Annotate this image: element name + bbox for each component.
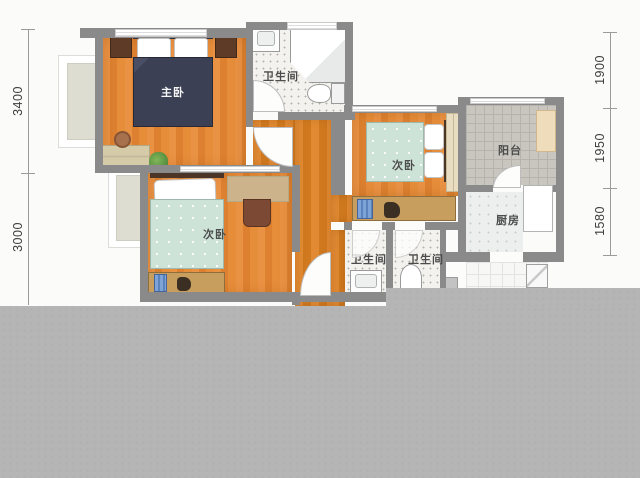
dimension-right-1950: 1950 bbox=[593, 118, 607, 178]
bedroom-right-pillow-bottom bbox=[424, 152, 444, 178]
wall-left-bedroom-left bbox=[140, 173, 148, 300]
kitchen-counter bbox=[523, 185, 553, 232]
floor-plan: 主卧 次卧 次卧 卫生间 阳台 厨房 卫生间 卫生间 bbox=[0, 0, 640, 478]
nightstand-left bbox=[110, 36, 132, 58]
bathroom-mid-left-sink-basin bbox=[355, 274, 377, 288]
bathroom-mid-left-door-gap bbox=[352, 222, 382, 230]
wall-bottom-left bbox=[140, 292, 390, 302]
dimension-line-left bbox=[28, 29, 29, 305]
bathroom-top-sink-basin bbox=[257, 31, 275, 46]
bedroom-left-dresser-blue-item bbox=[154, 274, 167, 292]
dimension-line-right bbox=[610, 32, 611, 255]
wall-bedroom-balcony-divider bbox=[458, 105, 466, 196]
window-bedroom-right-top bbox=[352, 106, 437, 112]
bedroom-right-pillow-top bbox=[424, 124, 444, 150]
dimension-tick bbox=[603, 255, 617, 256]
bedroom-left-dresser-dark-item bbox=[177, 277, 191, 291]
dimension-tick bbox=[603, 32, 617, 33]
kitchen-label: 厨房 bbox=[496, 212, 520, 228]
dimension-tick bbox=[21, 173, 35, 174]
wall-corridor-right bbox=[331, 115, 345, 195]
bathroom-mid-right-door-gap bbox=[395, 222, 425, 230]
bedroom-left-chair bbox=[243, 199, 271, 227]
bedroom-right-cabinet-blue-item bbox=[357, 199, 373, 219]
wall-balcony-kitchen-left bbox=[458, 185, 493, 192]
bathroom-top-label: 卫生间 bbox=[263, 68, 299, 84]
shower-tray bbox=[526, 264, 548, 288]
dimension-tick bbox=[603, 108, 617, 109]
master-bed: 主卧 bbox=[133, 57, 213, 127]
gray-overlay-bottom bbox=[0, 306, 640, 478]
bedroom-right-bed bbox=[366, 122, 424, 182]
wall-bedroom-left-right-upper bbox=[292, 165, 300, 252]
wall-right-balcony-kitchen bbox=[556, 97, 564, 262]
nightstand-right bbox=[215, 36, 237, 58]
bedroom-right-label: 次卧 bbox=[392, 157, 416, 173]
dimension-right-1900: 1900 bbox=[593, 40, 607, 100]
dimension-right-1580: 1580 bbox=[593, 191, 607, 251]
bay-window-master-sill bbox=[67, 63, 97, 140]
bedroom-right-cabinet-dark-item bbox=[384, 202, 400, 218]
dimension-left-3400: 3400 bbox=[11, 71, 25, 131]
balcony-label: 阳台 bbox=[498, 142, 522, 158]
bathroom-top-toilet-tank bbox=[331, 83, 345, 104]
dimension-tick bbox=[21, 29, 35, 30]
balcony-cabinet bbox=[536, 110, 556, 152]
window-bathroom-top bbox=[287, 22, 337, 30]
kitchen-door-gap bbox=[490, 252, 523, 262]
master-bedroom-label: 主卧 bbox=[161, 84, 185, 100]
window-bedroom-left-top bbox=[180, 166, 280, 172]
bathroom-mid-right-label: 卫生间 bbox=[408, 251, 444, 267]
bathroom-top-toilet-bowl bbox=[307, 84, 331, 103]
corridor-floor-mid bbox=[331, 195, 352, 222]
wall-left-master bbox=[95, 38, 103, 173]
bedroom-left-label: 次卧 bbox=[203, 226, 227, 242]
dimension-tick bbox=[603, 188, 617, 189]
master-stool bbox=[114, 131, 131, 148]
window-balcony-top bbox=[470, 98, 545, 104]
wall-master-bathroom-divider bbox=[246, 28, 253, 127]
dimension-left-3000: 3000 bbox=[11, 207, 25, 267]
window-master-top bbox=[115, 29, 207, 37]
